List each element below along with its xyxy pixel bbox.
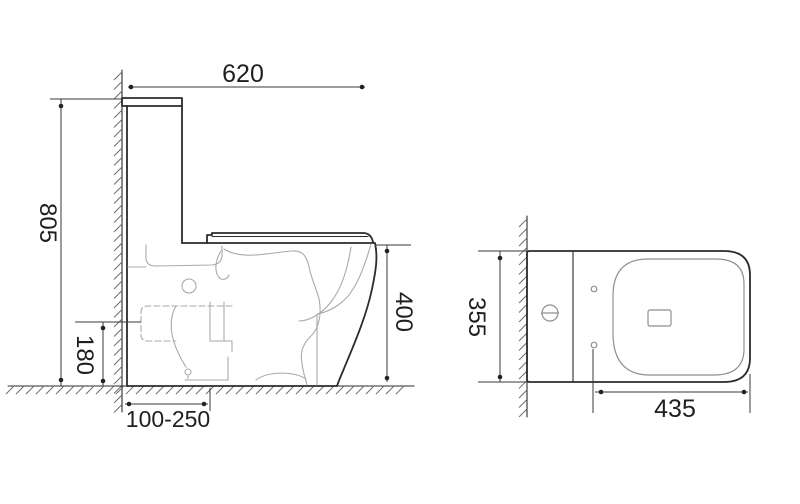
- hinge-hole-top: [591, 286, 597, 292]
- wall-hatch-top: [519, 219, 527, 417]
- toilet-technical-drawing: 620 805 180 400: [0, 0, 800, 504]
- ground-hatch: [6, 386, 404, 394]
- bowl-rim-shape: [613, 259, 744, 375]
- dim-overall-depth: 620: [128, 60, 365, 89]
- wall-hatch-side: [114, 72, 122, 413]
- side-view: 620 805 180 400: [6, 60, 417, 432]
- dim-label-180: 180: [71, 335, 98, 375]
- internal-section-sketch: [128, 244, 371, 385]
- fixing-hole-circle: [182, 279, 196, 293]
- bowl-outline: [127, 243, 376, 386]
- dim-label-805: 805: [34, 203, 61, 243]
- dim-label-355: 355: [463, 297, 490, 337]
- dim-seat-length: 435: [593, 349, 750, 423]
- hinge-hole-bottom: [591, 342, 597, 348]
- dim-seat-height: 400: [375, 245, 417, 382]
- dim-label-620: 620: [222, 60, 264, 88]
- dim-rough-in: 100-250: [125, 388, 210, 432]
- top-view: 355 435: [463, 216, 750, 423]
- drawing-svg: 620 805 180 400: [0, 0, 800, 504]
- float-valve-circle: [185, 369, 191, 375]
- dim-label-100-250: 100-250: [126, 406, 210, 432]
- dim-label-400: 400: [390, 292, 417, 332]
- water-spot-rect: [648, 310, 671, 326]
- top-body-outline: [527, 251, 750, 382]
- seat-outline: [207, 233, 374, 243]
- inlet-dashed-box: [141, 306, 232, 341]
- dim-label-435: 435: [654, 395, 696, 423]
- top-view-details: [541, 259, 744, 375]
- dim-outlet-height: 180: [71, 322, 141, 386]
- dim-overall-width: 355: [463, 251, 527, 382]
- cistern-outline: [122, 98, 182, 386]
